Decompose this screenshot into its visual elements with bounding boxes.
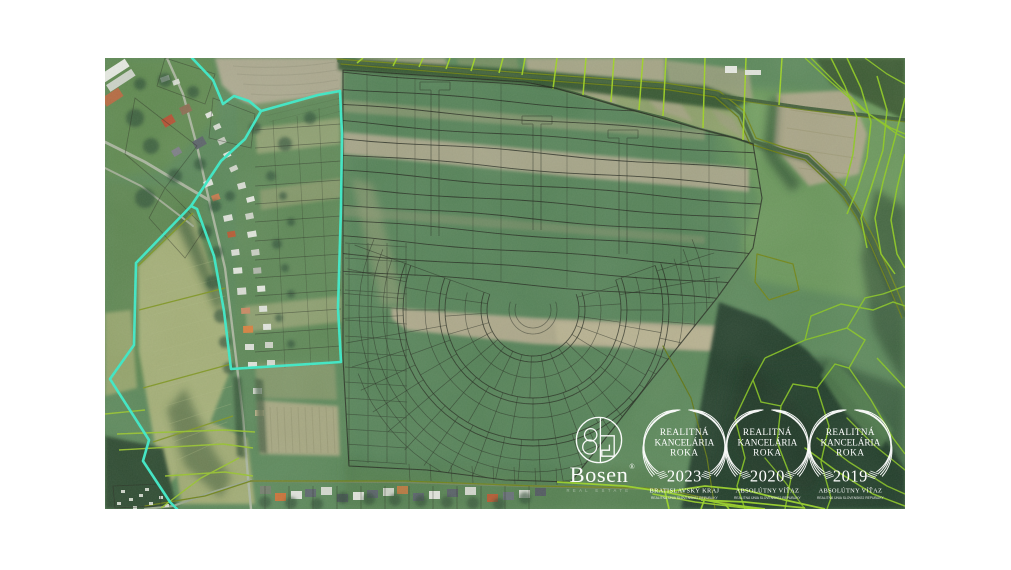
svg-text:KANCELÁRIA: KANCELÁRIA	[655, 438, 715, 448]
svg-text:REALITNÁ: REALITNÁ	[660, 427, 709, 437]
svg-text:ROKA: ROKA	[753, 448, 781, 458]
svg-text:REALITNÁ ÚNIA SLOVENSKEJ REPUB: REALITNÁ ÚNIA SLOVENSKEJ REPUBLIKY	[734, 496, 801, 500]
svg-text:2019: 2019	[833, 467, 868, 486]
svg-text:ABSOLÚTNY VÍŤAZ: ABSOLÚTNY VÍŤAZ	[819, 487, 883, 495]
svg-text:REALITNÁ ÚNIA SLOVENSKEJ REPUB: REALITNÁ ÚNIA SLOVENSKEJ REPUBLIKY	[651, 496, 718, 500]
svg-text:KANCELÁRIA: KANCELÁRIA	[821, 438, 881, 448]
svg-text:2023: 2023	[667, 467, 702, 486]
svg-text:®: ®	[629, 463, 635, 471]
svg-text:ROKA: ROKA	[670, 448, 698, 458]
svg-text:REALITNÁ ÚNIA SLOVENSKEJ REPUB: REALITNÁ ÚNIA SLOVENSKEJ REPUBLIKY	[817, 496, 884, 500]
svg-text:Bosen: Bosen	[570, 462, 629, 487]
svg-text:BRATISLAVSKÝ KRAJ: BRATISLAVSKÝ KRAJ	[650, 487, 720, 495]
svg-text:REAL ESTATE: REAL ESTATE	[566, 488, 631, 493]
svg-text:REALITNÁ: REALITNÁ	[743, 427, 792, 437]
svg-text:ROKA: ROKA	[836, 448, 864, 458]
svg-text:KANCELÁRIA: KANCELÁRIA	[738, 438, 798, 448]
svg-text:REALITNÁ: REALITNÁ	[826, 427, 875, 437]
svg-text:2020: 2020	[750, 467, 785, 486]
svg-text:ABSOLÚTNY VÍŤAZ: ABSOLÚTNY VÍŤAZ	[736, 487, 800, 495]
